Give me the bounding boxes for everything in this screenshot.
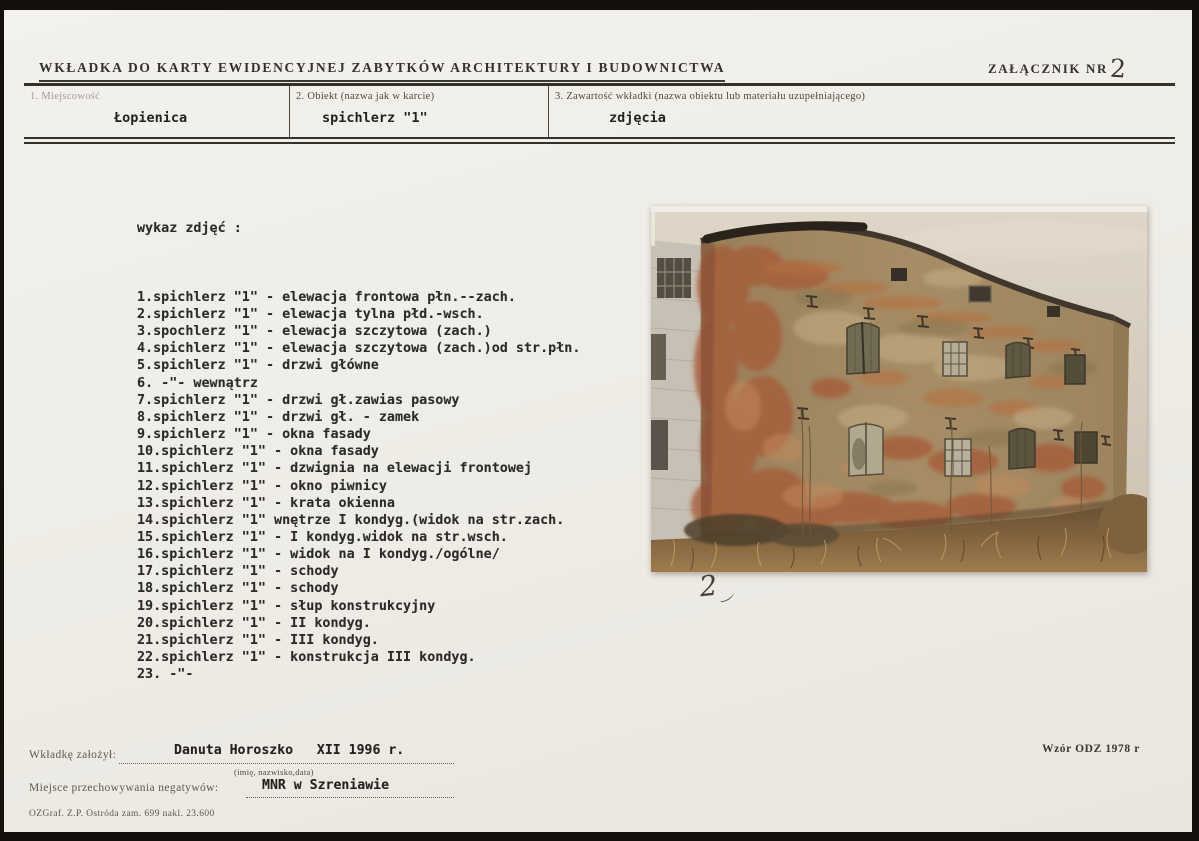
building-photo-art: [651, 206, 1147, 572]
attachment-number-handwritten: 2: [1109, 54, 1126, 84]
photo-list-items: 1.spichlerz "1" - elewacja frontowa płn.…: [137, 289, 580, 684]
photo-list-heading: wykaz zdjęć :: [137, 220, 580, 237]
building-photo: [651, 206, 1147, 572]
photo-list-item: 6. -"- wewnątrz: [137, 375, 580, 392]
attachment-label: ZAŁĄCZNIK NR2: [988, 54, 1126, 83]
founder-value: Danuta Horoszko XII 1996 r.: [174, 743, 404, 758]
negatives-line: [246, 796, 454, 798]
field-obiekt-value: spichlerz "1": [322, 110, 548, 126]
field-zawartosc: 3. Zawartość wkładki (nazwa obiektu lub …: [549, 86, 1175, 137]
founder-line: [119, 762, 454, 764]
photo-list: wykaz zdjęć : 1.spichlerz "1" - elewacja…: [137, 186, 580, 718]
table-bottom-rule: [24, 137, 1175, 144]
photo-list-item: 7.spichlerz "1" - drzwi gł.zawias pasowy: [137, 392, 580, 409]
photo-list-item: 15.spichlerz "1" - I kondyg.widok na str…: [137, 529, 580, 546]
photo-list-item: 8.spichlerz "1" - drzwi gł. - zamek: [137, 409, 580, 426]
photo-list-item: 2.spichlerz "1" - elewacja tylna płd.-ws…: [137, 306, 580, 323]
photo-list-item: 19.spichlerz "1" - słup konstrukcyjny: [137, 598, 580, 615]
page-surface: WKŁADKA DO KARTY EWIDENCYJNEJ ZABYTKÓW A…: [4, 10, 1192, 832]
template-info: Wzór ODZ 1978 r: [1042, 743, 1140, 755]
photo-list-item: 13.spichlerz "1" - krata okienna: [137, 495, 580, 512]
photo-list-item: 18.spichlerz "1" - schody: [137, 580, 580, 597]
field-miejscowosc: 1. Miejscowość Łopienica: [24, 86, 290, 137]
photo-list-item: 21.spichlerz "1" - III kondyg.: [137, 632, 580, 649]
field-miejscowosc-value: Łopienica: [114, 110, 289, 126]
field-zawartosc-label: 3. Zawartość wkładki (nazwa obiektu lub …: [555, 91, 1175, 102]
scanned-document: { "form": { "title": "WKŁADKA DO KARTY E…: [0, 0, 1199, 841]
photo-list-item: 1.spichlerz "1" - elewacja frontowa płn.…: [137, 289, 580, 306]
form-title: WKŁADKA DO KARTY EWIDENCYJNEJ ZABYTKÓW A…: [39, 60, 725, 82]
field-zawartosc-value: zdjęcia: [609, 110, 1175, 126]
photo-list-item: 12.spichlerz "1" - okno piwnicy: [137, 478, 580, 495]
photo-list-item: 3.spochlerz "1" - elewacja szczytowa (za…: [137, 323, 580, 340]
photo-list-item: 10.spichlerz "1" - okna fasady: [137, 443, 580, 460]
photo-list-item: 11.spichlerz "1" - dzwignia na elewacji …: [137, 460, 580, 477]
negatives-value: MNR w Szreniawie: [262, 778, 389, 793]
photo-list-item: 14.spichlerz "1" wnętrze I kondyg.(widok…: [137, 512, 580, 529]
attachment-label-text: ZAŁĄCZNIK NR: [988, 61, 1108, 76]
founder-caption: (imię, nazwisko,data): [234, 767, 314, 777]
founder-label: Wkładkę założył:: [29, 749, 116, 761]
field-obiekt: 2. Obiekt (nazwa jak w karcie) spichlerz…: [290, 86, 549, 137]
photo-list-item: 22.spichlerz "1" - konstrukcja III kondy…: [137, 649, 580, 666]
photo-list-item: 4.spichlerz "1" - elewacja szczytowa (za…: [137, 340, 580, 357]
field-obiekt-label: 2. Obiekt (nazwa jak w karcie): [296, 91, 548, 102]
photo-list-item: 17.spichlerz "1" - schody: [137, 563, 580, 580]
field-miejscowosc-label: 1. Miejscowość: [30, 91, 289, 102]
header-fields-table: 1. Miejscowość Łopienica 2. Obiekt (nazw…: [24, 86, 1175, 137]
photo-list-item: 23. -"-: [137, 666, 580, 683]
photo-number-handwritten: 2: [698, 566, 749, 617]
negatives-label: Miejsce przechowywania negatywów:: [29, 782, 218, 794]
photo-list-item: 16.spichlerz "1" - widok na I kondyg./og…: [137, 546, 580, 563]
photo-list-item: 20.spichlerz "1" - II kondyg.: [137, 615, 580, 632]
photo-list-item: 9.spichlerz "1" - okna fasady: [137, 426, 580, 443]
print-info: OZGraf. Z.P. Ostróda zam. 699 nakl. 23.6…: [29, 809, 215, 819]
photo-list-item: 5.spichlerz "1" - drzwi główne: [137, 357, 580, 374]
